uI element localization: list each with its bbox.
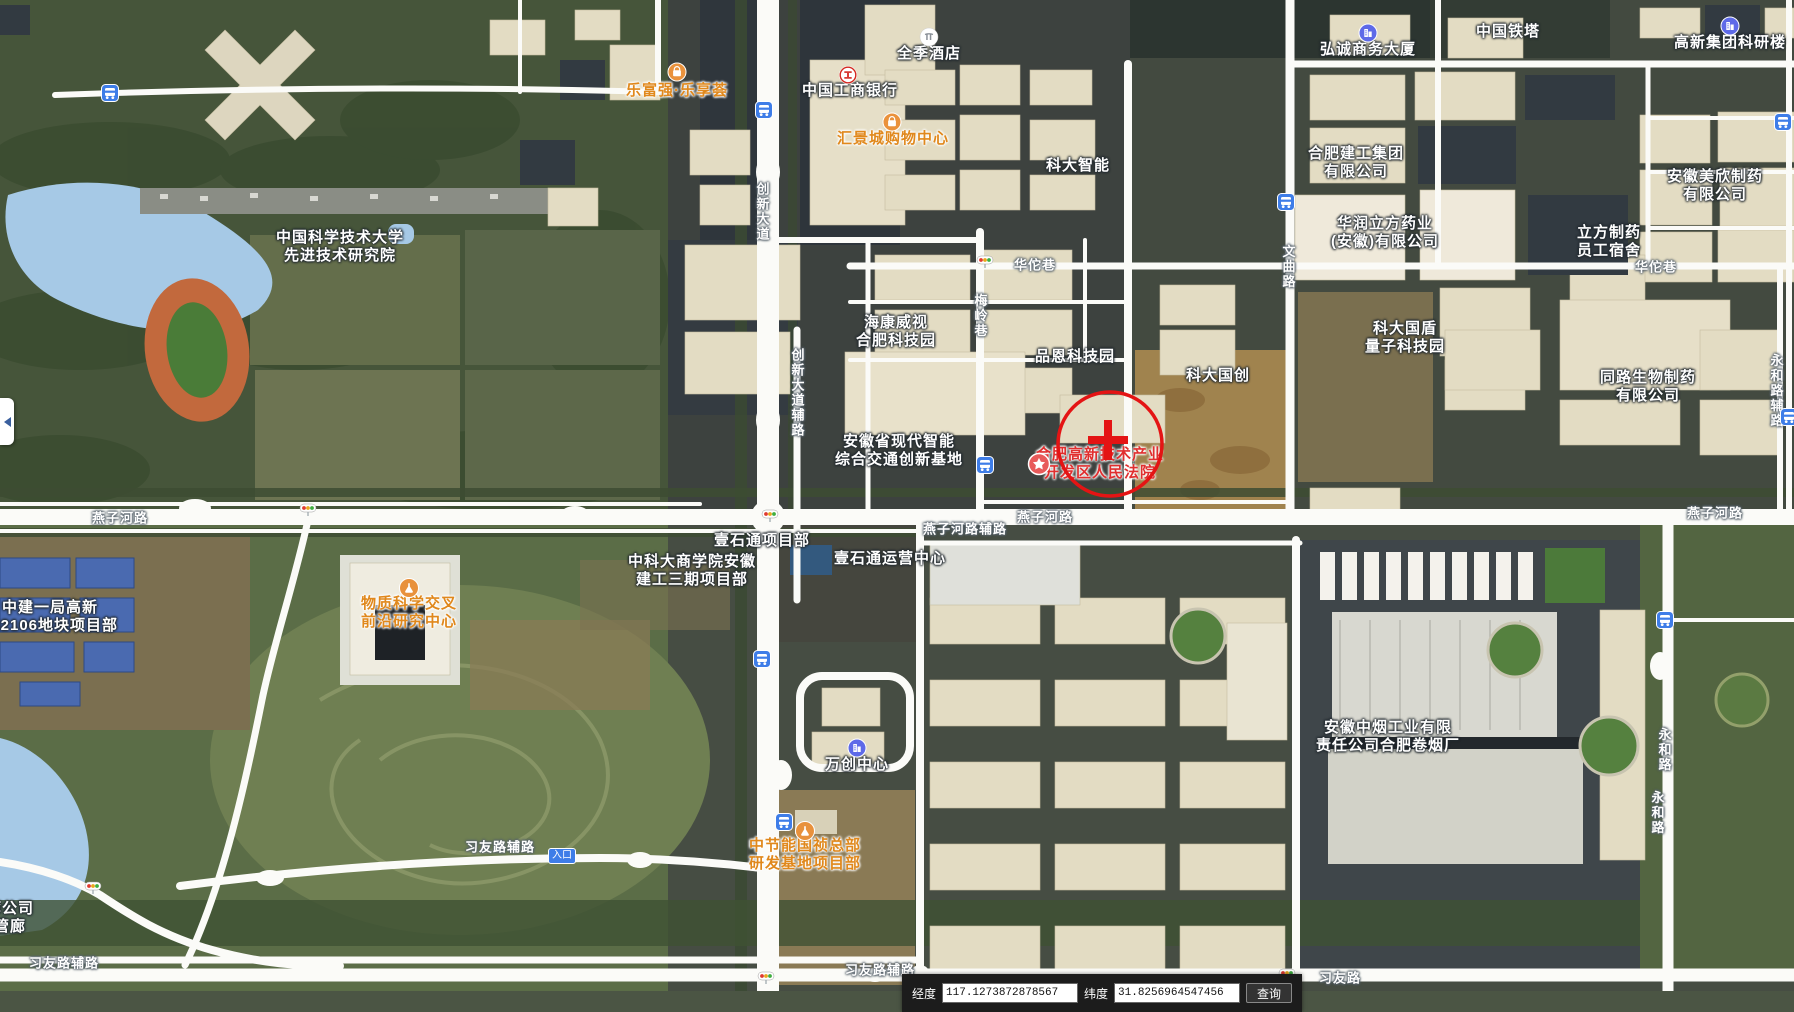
poi-label-yishitong-project-dept[interactable]: 壹石通项目部 (714, 532, 810, 550)
road-label: 文曲路 (1279, 245, 1298, 290)
flask-icon[interactable] (795, 821, 815, 841)
road-label: 永和路 (1648, 791, 1667, 836)
traffic-light-icon (761, 509, 779, 523)
satellite-map-app: { "colors":{"accent_blue":"#3e7de8","poi… (0, 0, 1794, 991)
poi-label-wanchuang-center[interactable]: 万创中心 (825, 756, 889, 774)
longitude-label: 经度 (912, 985, 936, 1002)
bank-icon[interactable] (839, 66, 858, 85)
poi-label-material-science-research-center[interactable]: 物质科学交叉前沿研究中心 (361, 595, 457, 631)
poi-label-hongcheng-business-tower[interactable]: 弘诚商务大厦 (1320, 41, 1416, 59)
road-label: 习友路辅路 (29, 953, 99, 972)
poi-label-huarun-lifang-pharma[interactable]: 华润立方药业(安徽)有限公司 (1331, 215, 1439, 251)
latitude-input[interactable] (1114, 983, 1240, 1003)
traffic-light-icon (976, 255, 994, 269)
poi-label-hefei-construction-group[interactable]: 合肥建工集团有限公司 (1308, 145, 1404, 181)
poi-label-ustc-advanced-tech-institute[interactable]: 中国科学技术大学先进技术研究院 (276, 229, 404, 265)
poi-label-huijingcheng-mall[interactable]: 汇景城购物中心 (837, 130, 949, 148)
poi-label-anhui-meixin-pharma[interactable]: 安徽美欣制药有限公司 (1667, 168, 1763, 204)
bus-stop-icon[interactable] (755, 101, 773, 119)
bus-stop-icon[interactable] (1774, 113, 1792, 131)
road-label: 华佗巷 (1635, 257, 1677, 276)
building-icon[interactable] (848, 739, 867, 758)
poi-label-lifang-pharma-dormitory[interactable]: 立方制药员工宿舍 (1577, 224, 1641, 260)
poi-label-china-tower[interactable]: 中国铁塔 (1476, 23, 1540, 41)
map-overlay-layer: 中国科学技术大学先进技术研究院乐富强·乐享荟全季酒店中国工商银行汇景城购物中心科… (0, 0, 1794, 991)
bus-stop-icon[interactable] (1277, 193, 1295, 211)
poi-label-hikvision-hefei-tech-park[interactable]: 海康威视合肥科技园 (856, 314, 936, 350)
poi-label-keda-guochuang[interactable]: 科大国创 (1186, 367, 1250, 385)
road-label: 永和路 (1655, 728, 1674, 773)
entrance-badge: 入口 (548, 848, 576, 864)
road-label: 习友路 (1319, 968, 1361, 987)
poi-label-lefuqiang-lexianghui[interactable]: 乐富强·乐享荟 (626, 82, 728, 100)
bus-stop-icon[interactable] (1656, 611, 1674, 629)
flask-icon[interactable] (399, 578, 419, 598)
road-label: 创新大道辅路 (788, 348, 807, 438)
poi-label-hefei-hightech-court[interactable]: 合肥高新技术产业开发区人民法院 (1036, 446, 1164, 482)
poi-label-keda-guodun-quantum-park[interactable]: 科大国盾量子科技园 (1365, 320, 1445, 356)
poi-label-icbc-bank[interactable]: 中国工商银行 (802, 82, 898, 100)
road-label: 习友路辅路 (465, 837, 535, 856)
shopping-bag-icon[interactable] (883, 113, 902, 132)
poi-label-anhui-intelligent-transport-base[interactable]: 安徽省现代智能综合交通创新基地 (835, 433, 963, 469)
poi-label-yishitong-operation-center[interactable]: 壹石通运营中心 (834, 550, 946, 568)
road-label: 梅岭巷 (971, 294, 990, 339)
road-label: 燕子河路辅路 (923, 519, 1007, 538)
hotel-icon[interactable] (920, 28, 939, 47)
poi-label-anhui-tobacco-hefei-cigarette-factory[interactable]: 安徽中烟工业有限责任公司合肥卷烟厂 (1316, 719, 1460, 755)
poi-label-gaoxin-group-research-building[interactable]: 高新集团科研楼 (1674, 34, 1786, 52)
poi-label-tonglu-bio-pharma[interactable]: 同路生物制药有限公司 (1600, 369, 1696, 405)
poi-label-ustc-business-school-project[interactable]: 中科大商学院安徽建工三期项目部 (628, 553, 756, 589)
poi-label-quanji-hotel[interactable]: 全季酒店 (897, 45, 961, 63)
longitude-input[interactable] (942, 983, 1078, 1003)
traffic-light-icon (757, 971, 775, 985)
search-button[interactable]: 查询 (1246, 983, 1292, 1003)
bus-stop-icon[interactable] (101, 84, 119, 102)
road-label: 燕子河路 (1017, 507, 1073, 526)
road-label: 创新大道 (753, 182, 772, 242)
collapse-left-icon (4, 417, 11, 427)
coordinate-bar: 经度 纬度 查询 (902, 974, 1302, 1012)
building-icon[interactable] (1721, 17, 1740, 36)
poi-label-keda-intelligent[interactable]: 科大智能 (1046, 157, 1110, 175)
bus-stop-icon[interactable] (976, 456, 994, 474)
poi-label-pinen-tech-park[interactable]: 品恩科技园 (1035, 348, 1115, 366)
poi-label-cecep-guozhen-rd-base-project[interactable]: 中节能国祯总部研发基地项目部 (749, 837, 861, 873)
poi-label-zhongjian-yiju-project-dept[interactable]: 中建一局高新202106地块项目部 (0, 599, 118, 635)
traffic-light-icon (299, 503, 317, 517)
bus-stop-icon[interactable] (1780, 408, 1794, 426)
building-icon[interactable] (1359, 24, 1378, 43)
road-label: 燕子河路 (1687, 503, 1743, 522)
road-label: 燕子河路 (92, 508, 148, 527)
poi-label-pipe-gallery-company-partial[interactable]: 廊公司管廊 (0, 900, 34, 936)
traffic-light-icon (84, 881, 102, 895)
sidebar-collapse-toggle[interactable] (0, 398, 14, 445)
star-icon[interactable] (1028, 453, 1051, 476)
shopping-bag-icon[interactable] (668, 63, 687, 82)
bus-stop-icon[interactable] (775, 813, 793, 831)
bus-stop-icon[interactable] (753, 650, 771, 668)
latitude-label: 纬度 (1084, 985, 1108, 1002)
road-label: 华佗巷 (1014, 255, 1056, 274)
